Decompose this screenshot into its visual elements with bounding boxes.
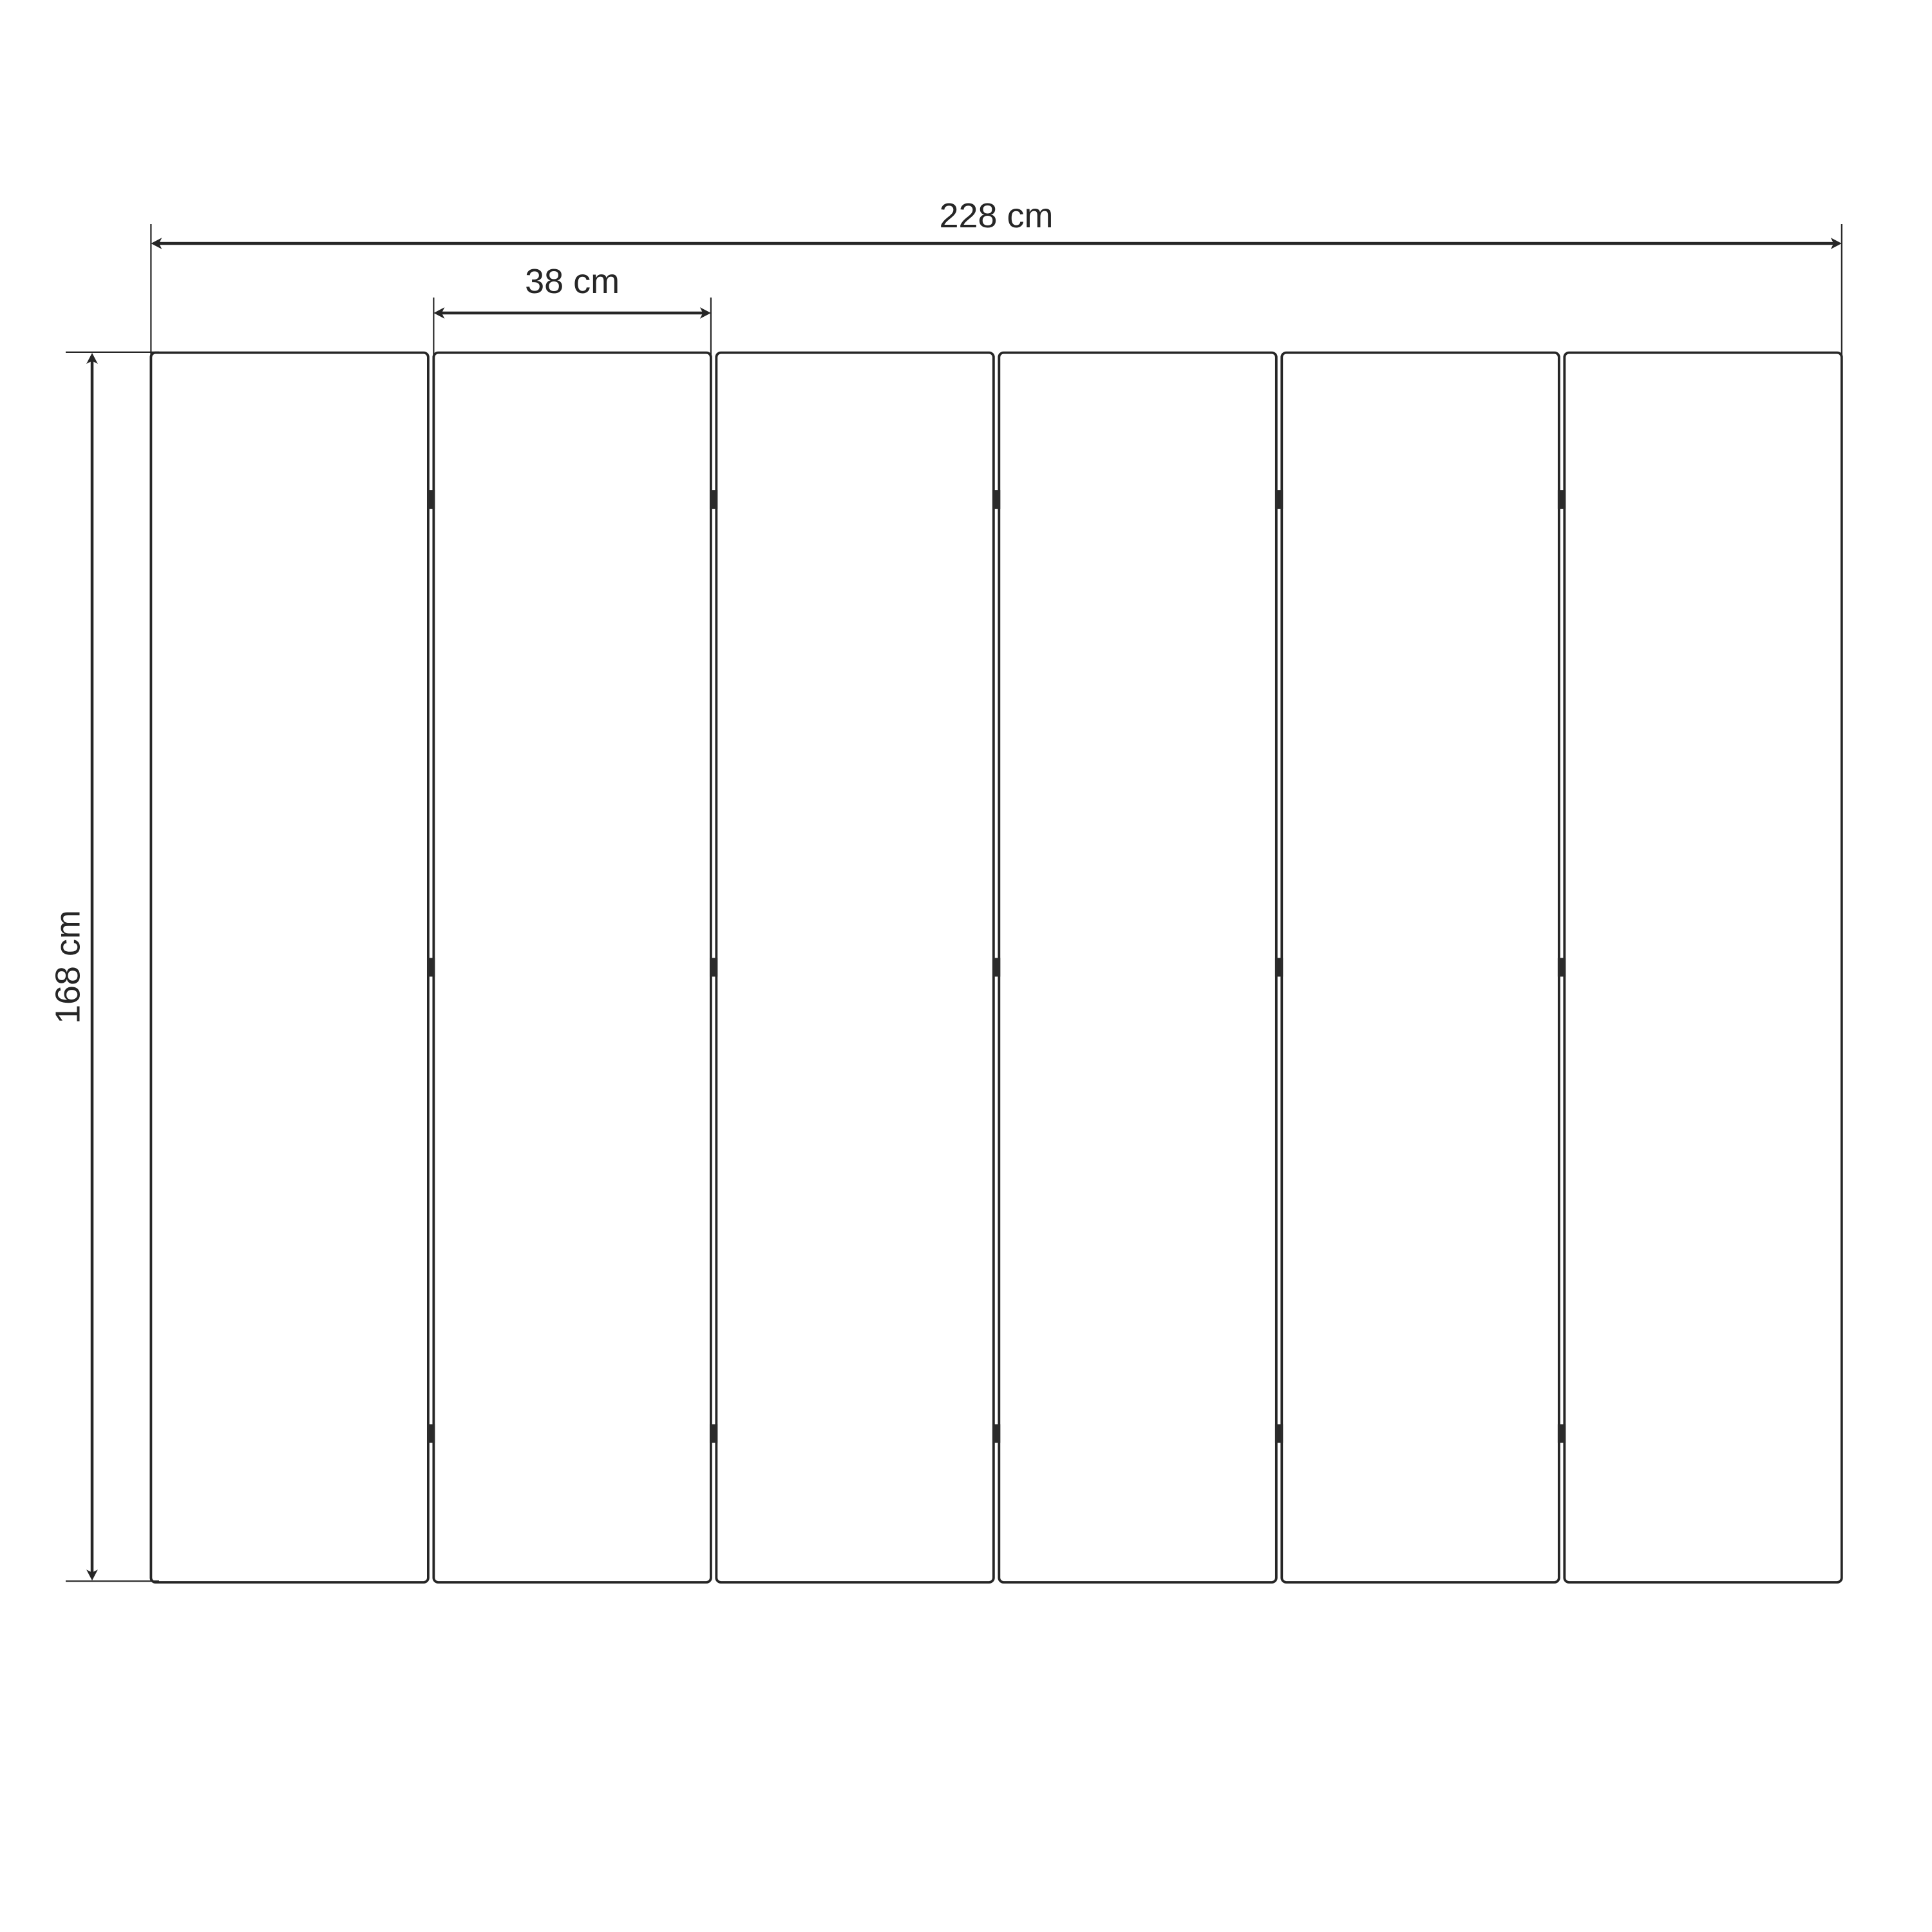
svg-text:228 cm: 228 cm [939,196,1053,235]
svg-text:38 cm: 38 cm [525,262,620,301]
svg-text:168 cm: 168 cm [49,910,88,1024]
